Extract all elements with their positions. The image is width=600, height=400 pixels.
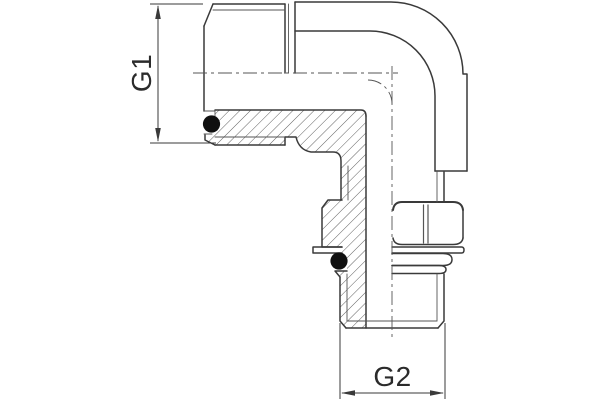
centerlines xyxy=(193,66,398,338)
elbow-fitting-drawing: G1 G2 xyxy=(0,0,600,400)
stud-o-ring xyxy=(330,252,347,269)
g2-arrow-right xyxy=(430,390,444,396)
g1-label: G1 xyxy=(126,54,157,92)
g1-tip-chamfer-top xyxy=(204,4,213,26)
washer-section-outline xyxy=(313,247,342,253)
g1-arrow-up xyxy=(155,5,161,19)
seal-ring-bulge xyxy=(392,254,452,266)
g2-arrow-left xyxy=(341,390,355,396)
g1-arrow-down xyxy=(155,128,161,142)
locknut-section-hatch xyxy=(322,200,342,247)
washer-right-outline xyxy=(392,247,464,253)
technical-drawing-canvas: G1 G2 xyxy=(0,0,600,400)
bend-centerline-arc xyxy=(368,80,392,104)
seal-retaining-ring xyxy=(392,266,446,274)
face-o-ring xyxy=(203,115,220,132)
g2-label: G2 xyxy=(373,361,411,392)
g1-groove-shelf xyxy=(204,111,215,116)
body-outline xyxy=(204,2,467,328)
g2-thread-crest-right-lower xyxy=(438,274,444,328)
